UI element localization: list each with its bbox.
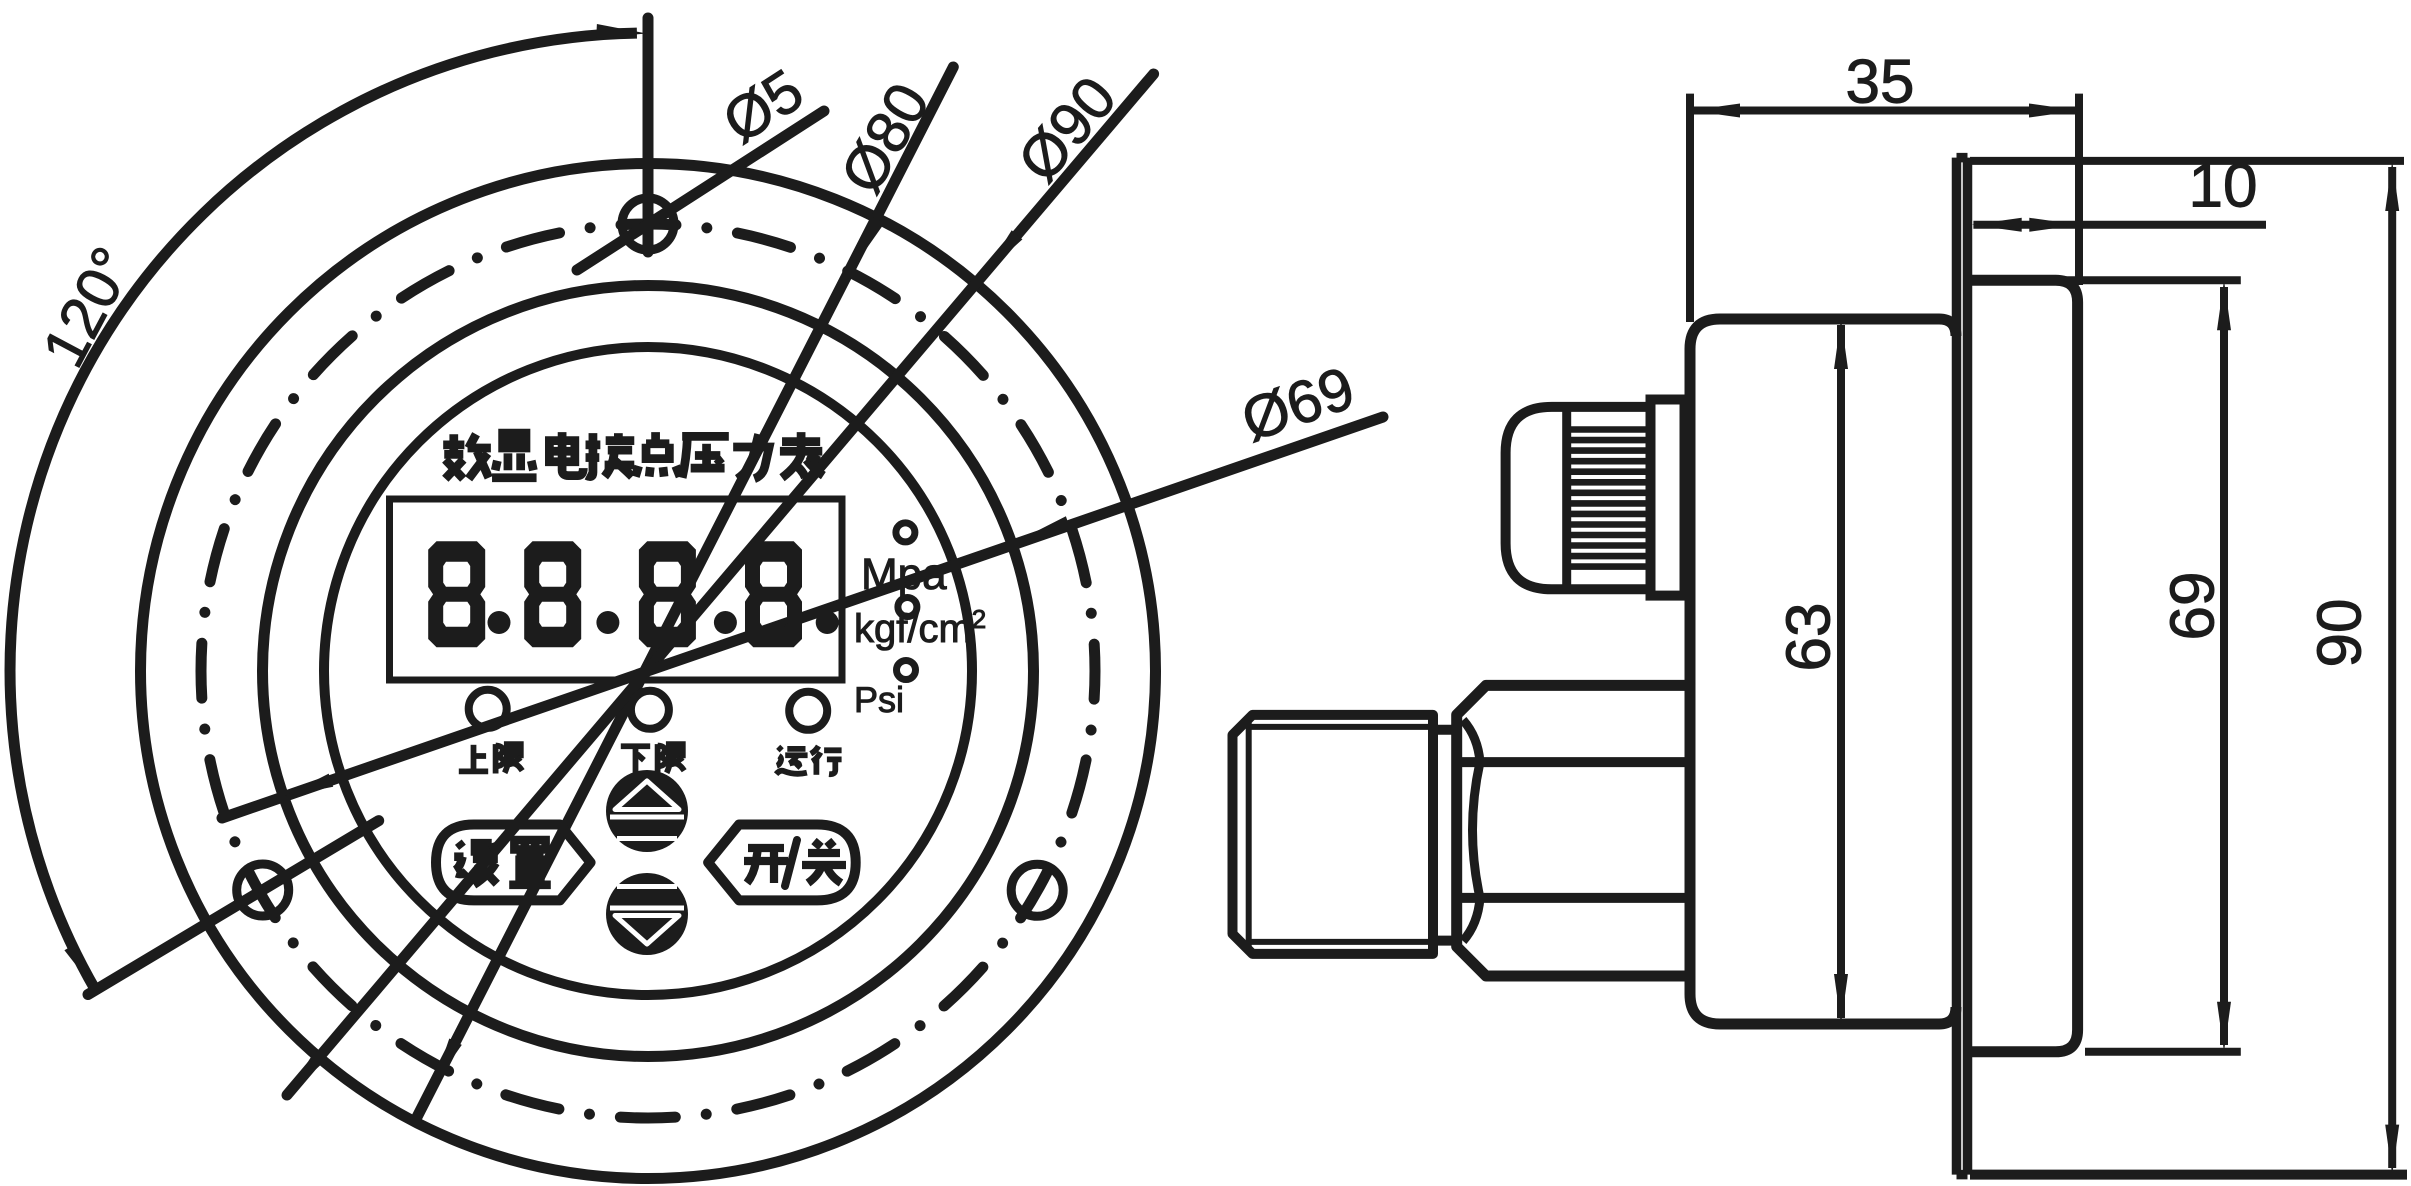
svg-text:63: 63 xyxy=(1775,603,1844,672)
svg-text:Ø80: Ø80 xyxy=(828,72,943,204)
svg-text:90: 90 xyxy=(2306,599,2375,668)
svg-text:35: 35 xyxy=(1845,47,1914,116)
svg-text:Psi: Psi xyxy=(854,679,904,720)
svg-text:Mpa: Mpa xyxy=(861,550,947,599)
svg-text:Ø5: Ø5 xyxy=(711,56,815,156)
svg-text:69: 69 xyxy=(2159,572,2228,641)
svg-text:Ø90: Ø90 xyxy=(1005,64,1129,194)
svg-text:kgf/cm2: kgf/cm2 xyxy=(854,604,986,651)
svg-text:Ø69: Ø69 xyxy=(1233,354,1362,454)
